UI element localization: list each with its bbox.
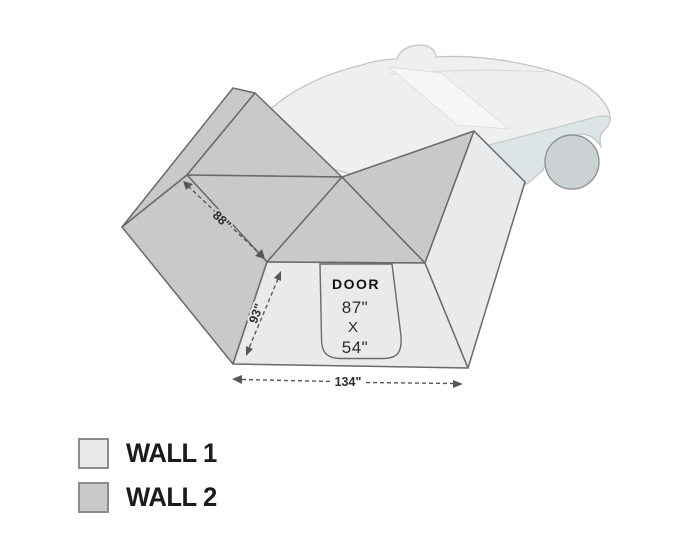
dimension-134-arrowhead-left [232, 375, 242, 384]
vehicle-wheel [545, 135, 599, 189]
door-height-label: 87" [342, 298, 368, 317]
wall2-swatch [78, 482, 109, 513]
wall1-swatch [78, 438, 109, 469]
wall1-label: WALL 1 [126, 438, 217, 469]
legend: WALL 1 WALL 2 [78, 438, 222, 513]
legend-item-wall1: WALL 1 [78, 438, 222, 469]
door-separator-label: X [348, 319, 358, 336]
dimension-134-line-left [242, 380, 331, 382]
door: DOOR 87" X 54" [320, 264, 401, 359]
dimension-134-arrowhead-right [453, 380, 463, 388]
door-width-label: 54" [342, 338, 368, 357]
dimension-134-label: 134" [335, 375, 362, 389]
dimension-134-line-right [366, 383, 453, 384]
legend-item-wall2: WALL 2 [78, 482, 222, 513]
door-label: DOOR [332, 276, 380, 292]
dimension-134: 134" [232, 375, 463, 389]
wall2-label: WALL 2 [126, 482, 217, 513]
